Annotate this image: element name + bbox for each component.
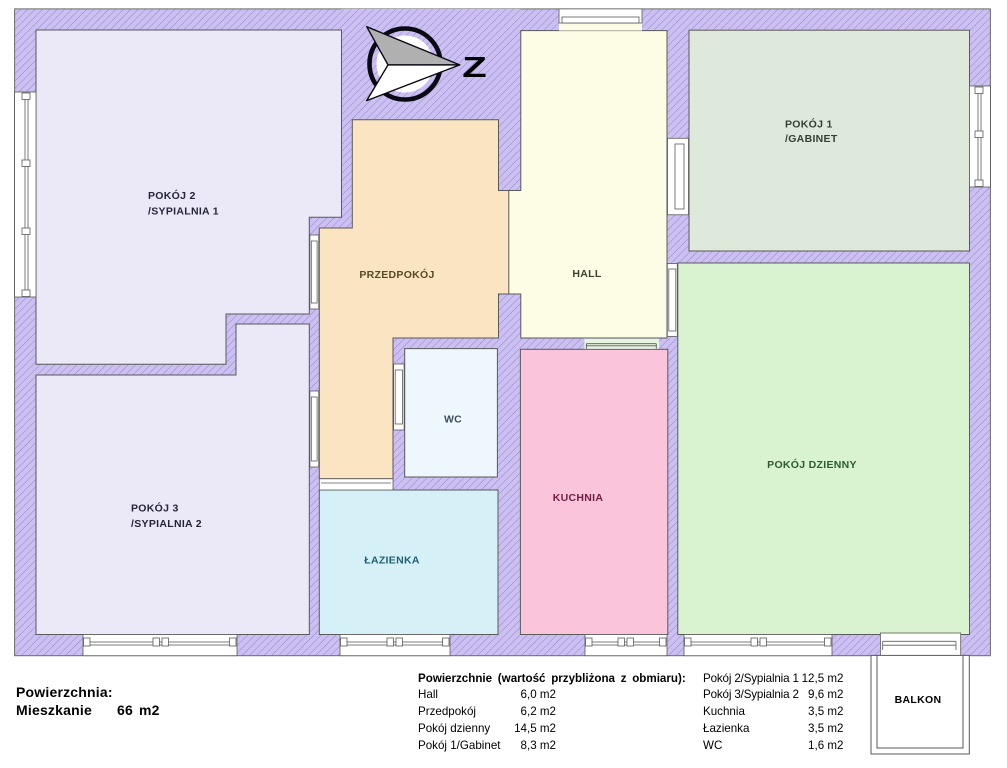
svg-text:/SYPIALNIA 1: /SYPIALNIA 1 <box>148 206 219 218</box>
svg-text:Z: Z <box>462 51 486 83</box>
svg-text:POKÓJ DZIENNY: POKÓJ DZIENNY <box>767 458 857 471</box>
svg-text:HALL: HALL <box>572 268 601 280</box>
svg-text:POKÓJ 2: POKÓJ 2 <box>148 189 196 202</box>
svg-text:WC: WC <box>444 414 462 426</box>
svg-text:POKÓJ 1: POKÓJ 1 <box>785 118 833 131</box>
svg-text:PRZEDPOKÓJ: PRZEDPOKÓJ <box>359 268 434 281</box>
svg-text:POKÓJ 3: POKÓJ 3 <box>131 502 179 515</box>
svg-text:/SYPIALNIA 2: /SYPIALNIA 2 <box>131 518 202 530</box>
svg-text:ŁAZIENKA: ŁAZIENKA <box>364 555 420 567</box>
svg-text:BALKON: BALKON <box>895 694 942 706</box>
svg-text:KUCHNIA: KUCHNIA <box>553 492 604 504</box>
svg-text:/GABINET: /GABINET <box>785 133 838 145</box>
